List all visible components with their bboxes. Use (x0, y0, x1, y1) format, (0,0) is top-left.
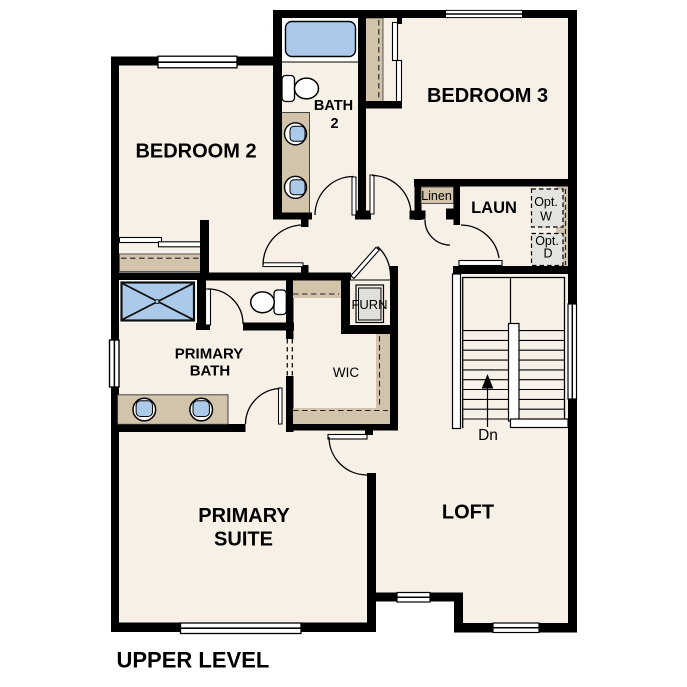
svg-text:Opt.: Opt. (534, 195, 558, 209)
svg-text:LAUN: LAUN (471, 199, 517, 217)
svg-text:FURN: FURN (351, 297, 387, 312)
svg-text:UPPER LEVEL: UPPER LEVEL (117, 648, 270, 673)
svg-text:LOFT: LOFT (442, 502, 494, 524)
svg-text:SUITE: SUITE (214, 528, 273, 550)
svg-text:D: D (543, 247, 552, 261)
svg-text:W: W (540, 210, 552, 224)
svg-text:BEDROOM 2: BEDROOM 2 (135, 140, 256, 162)
svg-text:BEDROOM 3: BEDROOM 3 (427, 85, 548, 107)
svg-text:2: 2 (330, 116, 338, 132)
svg-text:Dn: Dn (478, 427, 498, 444)
svg-text:PRIMARY: PRIMARY (198, 505, 290, 527)
svg-text:WIC: WIC (333, 365, 359, 380)
svg-text:Linen: Linen (421, 189, 452, 203)
svg-text:PRIMARY: PRIMARY (175, 345, 244, 362)
svg-text:BATH: BATH (190, 362, 231, 379)
svg-text:BATH: BATH (314, 98, 353, 114)
